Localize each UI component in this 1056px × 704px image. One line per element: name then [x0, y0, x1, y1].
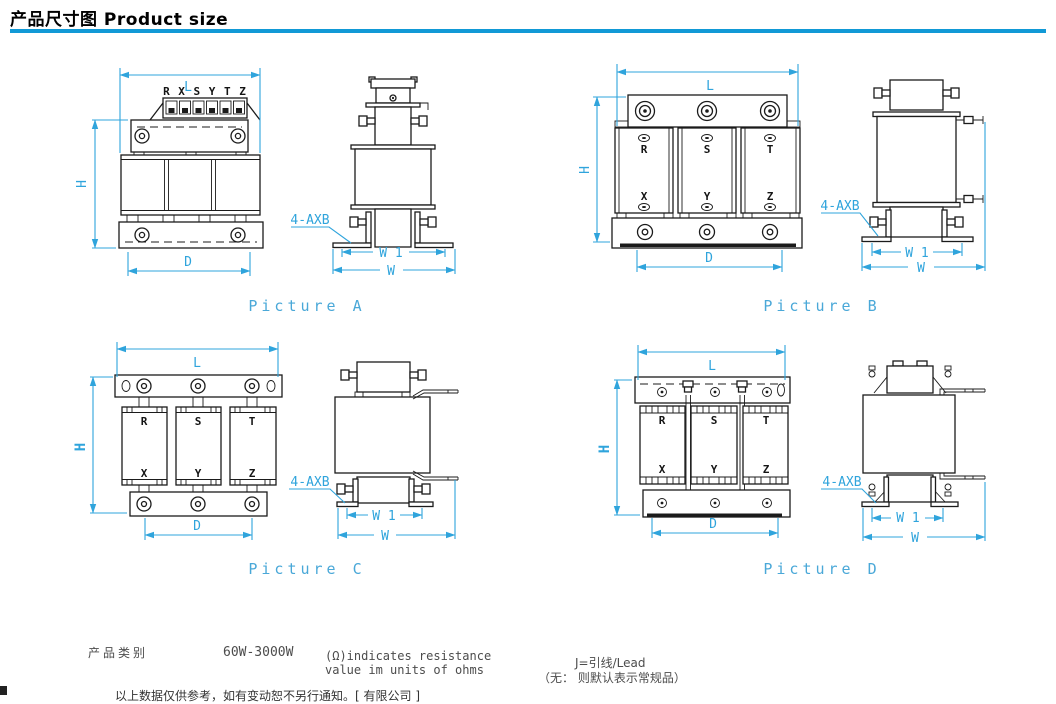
- phase-label-R: R: [641, 143, 648, 156]
- phase-label-T: T: [763, 414, 770, 427]
- phase-label-T: T: [249, 415, 256, 428]
- dim-label-D: D: [705, 251, 713, 266]
- dim-label-L: L: [706, 79, 714, 94]
- dim-label-W: W: [917, 261, 925, 276]
- phase-label-X: X: [141, 467, 148, 480]
- terminal-stubs: [139, 485, 257, 492]
- coil-feet-pads: [617, 213, 799, 218]
- phase-label-X: X: [659, 463, 666, 476]
- picture-b: R S T X Y Z: [578, 64, 985, 315]
- phase-label-Y: Y: [711, 463, 718, 476]
- coil-windings: R S T X Y Z: [640, 406, 788, 484]
- dim-label-W1: W 1: [905, 246, 928, 261]
- dim-label-W1: W 1: [896, 511, 919, 526]
- dimension-D: D: [652, 517, 778, 538]
- terminal-stubs: [139, 397, 257, 407]
- picture-a-caption: Picture A: [248, 297, 365, 315]
- dim-label-H: H: [578, 166, 593, 174]
- phase-label-X: X: [641, 190, 648, 203]
- picture-a-front-view: R X S Y T Z: [75, 68, 263, 276]
- dim-label-H: H: [75, 180, 90, 188]
- picture-c-caption: Picture C: [248, 560, 365, 578]
- dim-label-H: H: [597, 445, 613, 453]
- phase-label-S: S: [711, 414, 718, 427]
- phase-label-Y: Y: [704, 190, 711, 203]
- product-size-page: { "header": { "title": "产品尺寸图 Product si…: [0, 0, 1056, 695]
- dimension-H: H: [597, 380, 640, 515]
- category-label: 产品类别: [88, 644, 148, 661]
- dim-label-L: L: [708, 359, 716, 374]
- dimension-L: L: [638, 345, 785, 380]
- dim-label-W: W: [381, 529, 389, 544]
- phase-label-S: S: [195, 415, 202, 428]
- phase-label-S: S: [704, 143, 711, 156]
- logo-fragment: [0, 686, 7, 695]
- dim-label-W: W: [387, 264, 395, 279]
- phase-label-Y: Y: [195, 467, 202, 480]
- phase-label-Z: Z: [763, 463, 770, 476]
- dim-label-L: L: [184, 80, 192, 95]
- mount-note-label: 4-AXB: [820, 199, 859, 214]
- picture-d-front-view: R S T X Y Z L H: [597, 345, 790, 538]
- picture-a: R X S Y T Z: [75, 68, 455, 315]
- phase-label-R: R: [659, 414, 666, 427]
- category-value: 60W-3000W: [223, 645, 293, 660]
- mount-note-label: 4-AXB: [822, 475, 861, 490]
- dimension-W1: W 1: [872, 243, 962, 261]
- lead-pin-icon: [956, 116, 983, 203]
- picture-a-side-view: W 1 W 4-AXB: [290, 77, 455, 279]
- dimension-drawings: R X S Y T Z: [0, 0, 1056, 695]
- phase-label-Z: Z: [249, 467, 256, 480]
- mount-note-label: 4-AXB: [290, 475, 329, 490]
- dim-label-W: W: [911, 531, 919, 546]
- picture-b-side-view: W 1 W 4-AXB: [820, 80, 985, 276]
- mount-hole-callout: 4-AXB: [821, 475, 876, 503]
- picture-c: R S T X Y Z L: [73, 342, 458, 578]
- default-note: （无： 则默认表示常规品）: [538, 669, 686, 686]
- dim-label-D: D: [184, 255, 192, 270]
- picture-d-side-view: W 1 W 4-AXB: [821, 361, 985, 546]
- picture-b-front-view: R S T X Y Z: [578, 64, 802, 272]
- coil-windings: R S T X Y Z: [615, 128, 800, 213]
- terminal-row-label: R X S Y T Z: [163, 85, 247, 98]
- dimension-W1: W 1: [347, 508, 422, 524]
- picture-d-caption: Picture D: [763, 560, 880, 578]
- dim-label-H: H: [73, 443, 89, 451]
- phase-label-Z: Z: [767, 190, 774, 203]
- dimension-D: D: [128, 252, 250, 276]
- picture-b-caption: Picture B: [763, 297, 880, 315]
- dim-label-D: D: [193, 519, 201, 534]
- dimension-L: L: [117, 342, 278, 377]
- dim-label-D: D: [709, 517, 717, 532]
- picture-c-front-view: R S T X Y Z L: [73, 342, 282, 540]
- resistance-note-line1: (Ω)indicates resistance: [325, 649, 491, 663]
- dim-label-W1: W 1: [372, 509, 395, 524]
- dim-label-L: L: [193, 356, 201, 371]
- dimension-W1: W 1: [342, 246, 445, 261]
- dimension-D: D: [637, 250, 782, 272]
- mount-hole-callout: 4-AXB: [290, 213, 351, 243]
- picture-d: R S T X Y Z L H: [597, 345, 985, 578]
- mount-note-label: 4-AXB: [290, 213, 329, 228]
- picture-c-side-view: W 1 W 4-AXB: [289, 362, 458, 544]
- disclaimer-clipped: 以上数据仅供参考，如有变动恕不另行通知。[ 有限公司 ]: [115, 687, 420, 704]
- phase-label-R: R: [141, 415, 148, 428]
- phase-label-T: T: [767, 143, 774, 156]
- dimension-D: D: [145, 518, 252, 540]
- coil-windings: R S T X Y Z: [122, 407, 276, 485]
- resistance-note-line2: value im units of ohms: [325, 663, 484, 677]
- dim-label-W1: W 1: [379, 246, 402, 261]
- dimension-W1: W 1: [872, 508, 943, 526]
